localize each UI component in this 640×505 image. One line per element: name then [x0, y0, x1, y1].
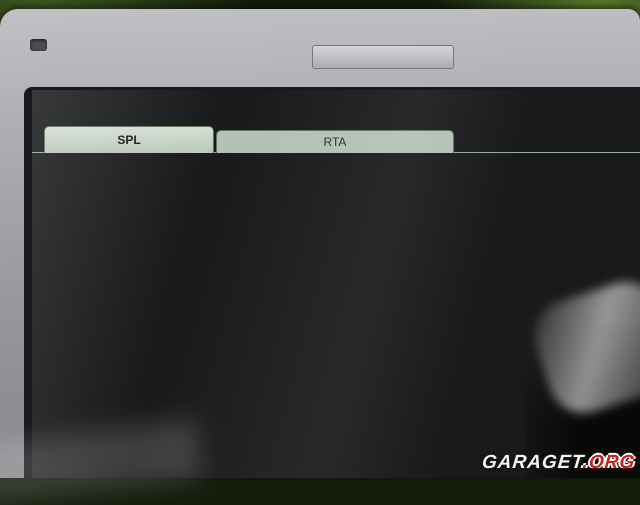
watermark: GARAGET.ORG: [481, 452, 636, 474]
tab-spl[interactable]: SPL: [44, 126, 214, 153]
lid-button: [30, 39, 47, 51]
lid-latch: [312, 45, 454, 69]
watermark-suffix: .ORG: [581, 452, 636, 473]
tab-rta[interactable]: RTA: [216, 130, 454, 153]
watermark-main: GARAGET: [481, 452, 584, 473]
laptop-body: [0, 9, 640, 478]
